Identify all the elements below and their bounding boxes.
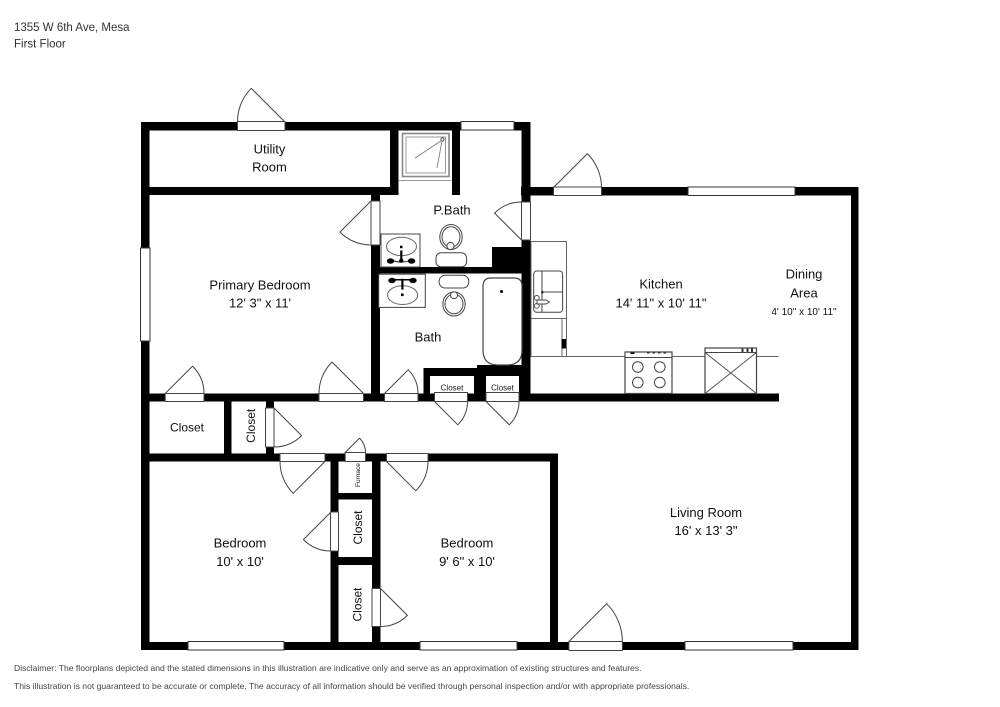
svg-text:Dining: Dining	[786, 267, 823, 282]
svg-text:Bedroom: Bedroom	[214, 536, 267, 551]
svg-text:Closet: Closet	[351, 510, 365, 545]
svg-text:14' 11" x 10' 11": 14' 11" x 10' 11"	[615, 296, 706, 311]
svg-text:Room: Room	[252, 160, 287, 175]
svg-text:9' 6" x 10': 9' 6" x 10'	[439, 554, 495, 569]
svg-text:Closet: Closet	[170, 421, 205, 435]
svg-text:Utility: Utility	[254, 142, 286, 157]
svg-text:12' 3" x 11': 12' 3" x 11'	[229, 296, 291, 311]
svg-text:10' x 10': 10' x 10'	[216, 554, 264, 569]
svg-text:16' x 13' 3": 16' x 13' 3"	[674, 523, 737, 538]
svg-text:Disclaimer: The floorplans dep: Disclaimer: The floorplans depicted and …	[14, 663, 642, 673]
svg-text:Bedroom: Bedroom	[441, 536, 494, 551]
svg-text:4' 10" x 10' 11": 4' 10" x 10' 11"	[771, 307, 837, 318]
svg-text:Closet: Closet	[491, 384, 514, 393]
svg-text:This illustration is not guara: This illustration is not guaranteed to b…	[14, 681, 689, 691]
svg-text:Bath: Bath	[415, 330, 442, 345]
svg-text:Area: Area	[790, 286, 818, 301]
svg-text:Closet: Closet	[244, 408, 258, 443]
svg-text:Closet: Closet	[351, 587, 365, 622]
svg-text:Primary Bedroom: Primary Bedroom	[209, 278, 310, 293]
svg-text:Closet: Closet	[441, 384, 464, 393]
svg-text:P.Bath: P.Bath	[433, 203, 470, 218]
svg-text:Kitchen: Kitchen	[639, 277, 682, 292]
svg-text:First Floor: First Floor	[14, 39, 66, 51]
svg-text:1355 W 6th Ave, Mesa: 1355 W 6th Ave, Mesa	[14, 22, 130, 34]
svg-text:Living Room: Living Room	[670, 505, 742, 520]
svg-text:Furnace: Furnace	[355, 463, 362, 487]
